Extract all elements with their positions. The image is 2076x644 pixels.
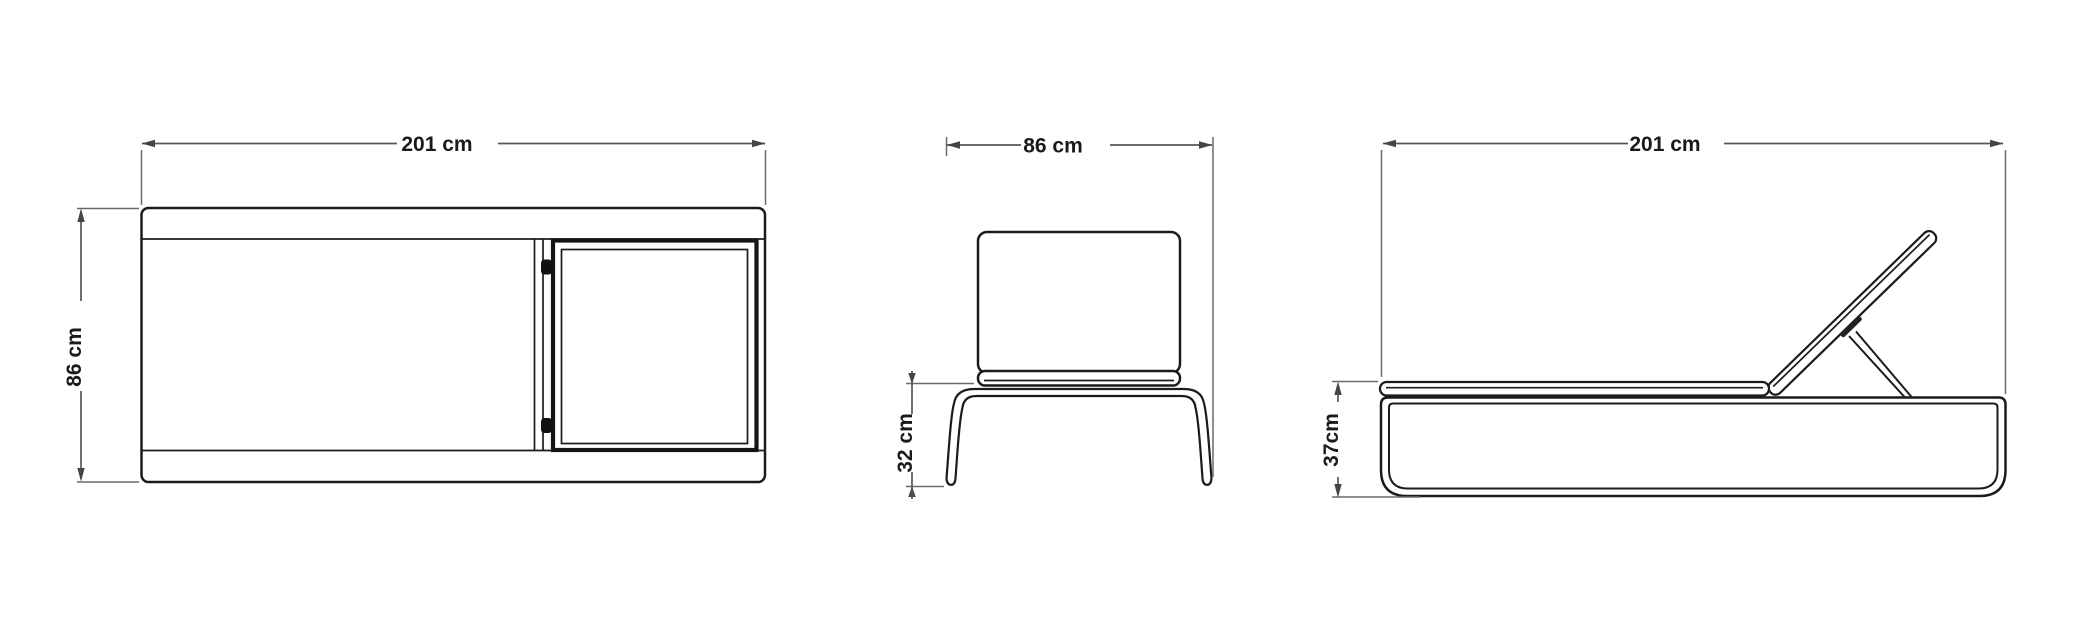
side-view-support-strut [1849, 332, 1912, 398]
top-view-backrest-panel-inner [562, 250, 748, 444]
front-view: 86 cm 32 cm [894, 135, 1213, 500]
front-view-right-foot [1203, 479, 1212, 485]
side-view-base-inner [1389, 404, 1998, 489]
side-view-backrest [1766, 228, 1942, 400]
side-view-base-outer [1381, 398, 2006, 497]
front-view-left-foot [947, 479, 956, 485]
side-view-base-height-label: 37cm [1320, 413, 1343, 467]
top-view-backrest-panel-outer [553, 241, 757, 451]
technical-drawing: 201 cm 86 cm [0, 0, 2076, 644]
front-view-leg-height-dimension: 32 cm [894, 371, 974, 499]
side-view-base-height-dimension: 37cm [1320, 382, 1420, 498]
top-view-hinge-upper [541, 260, 552, 275]
side-view: 201 cm 37cm [1320, 133, 2006, 498]
front-view-width-label: 86 cm [1023, 135, 1083, 158]
top-view-depth-label: 86 cm [63, 327, 86, 387]
side-view-seat-tube [1380, 382, 1769, 396]
front-view-leg-height-label: 32 cm [894, 413, 917, 473]
front-view-leg-frame [947, 389, 1212, 485]
top-view-hinge-lower [541, 418, 552, 433]
top-view-width-label: 201 cm [401, 133, 472, 156]
top-view-depth-dimension: 86 cm [63, 209, 139, 483]
front-view-seat-tube [978, 371, 1180, 386]
diagram-canvas: 201 cm 86 cm [0, 0, 2076, 644]
side-view-length-label: 201 cm [1629, 133, 1700, 156]
top-view: 201 cm 86 cm [63, 133, 766, 482]
top-view-width-dimension: 201 cm [142, 133, 766, 205]
front-view-backrest [978, 232, 1180, 373]
